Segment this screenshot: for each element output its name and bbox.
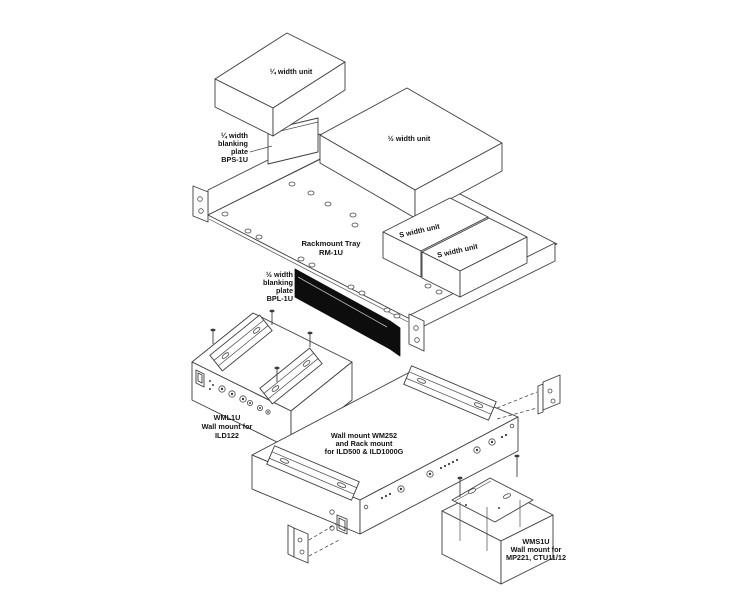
wm252-side-screw-1 xyxy=(330,510,334,514)
exploded-assembly-diagram: ¼ width unit ½ width unit S width unit S… xyxy=(0,0,750,600)
svg-text:RM-1U: RM-1U xyxy=(319,248,344,257)
svg-text:BPL-1U: BPL-1U xyxy=(267,294,293,303)
label-bpl-plate: ½ width blanking plate BPL-1U xyxy=(263,270,293,303)
svg-text:WML1U: WML1U xyxy=(214,413,241,422)
diagram-canvas: ¼ width unit ½ width unit S width unit S… xyxy=(0,0,750,600)
label-wm252: Wall mount WM252 and Rack mount for ILD5… xyxy=(325,431,404,456)
svg-text:BPS-1U: BPS-1U xyxy=(221,155,248,164)
svg-text:ILD122: ILD122 xyxy=(215,431,239,440)
half-unit-label: ½ width unit xyxy=(388,134,431,143)
tray-rack-ear-right xyxy=(409,314,424,351)
svg-text:Rackmount Tray: Rackmount Tray xyxy=(301,239,361,248)
svg-text:MP221, CTU11/12: MP221, CTU11/12 xyxy=(506,553,566,562)
svg-text:for ILD500 & ILD1000G: for ILD500 & ILD1000G xyxy=(325,447,404,456)
quarter-width-unit: ¼ width unit xyxy=(215,33,345,136)
quarter-unit-label: ¼ width unit xyxy=(270,67,313,76)
tray-rack-ear-left xyxy=(193,186,208,222)
svg-text:Wall mount for: Wall mount for xyxy=(202,422,253,431)
label-bps-plate: ¼ width blanking plate BPS-1U xyxy=(218,131,272,164)
